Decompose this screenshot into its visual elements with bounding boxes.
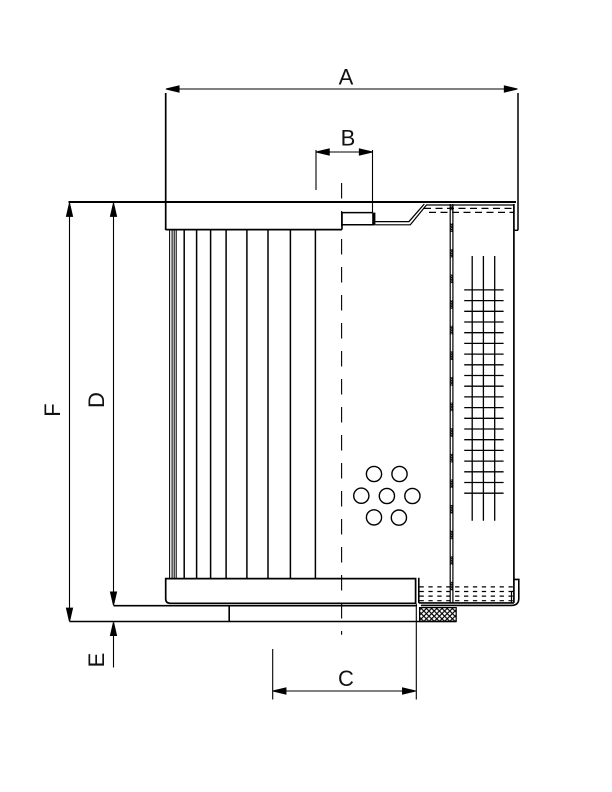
svg-text:F: F [40,403,65,416]
svg-text:A: A [339,65,354,90]
svg-text:E: E [84,653,109,668]
svg-text:B: B [341,126,356,151]
svg-text:D: D [84,392,109,408]
svg-text:C: C [338,666,354,691]
